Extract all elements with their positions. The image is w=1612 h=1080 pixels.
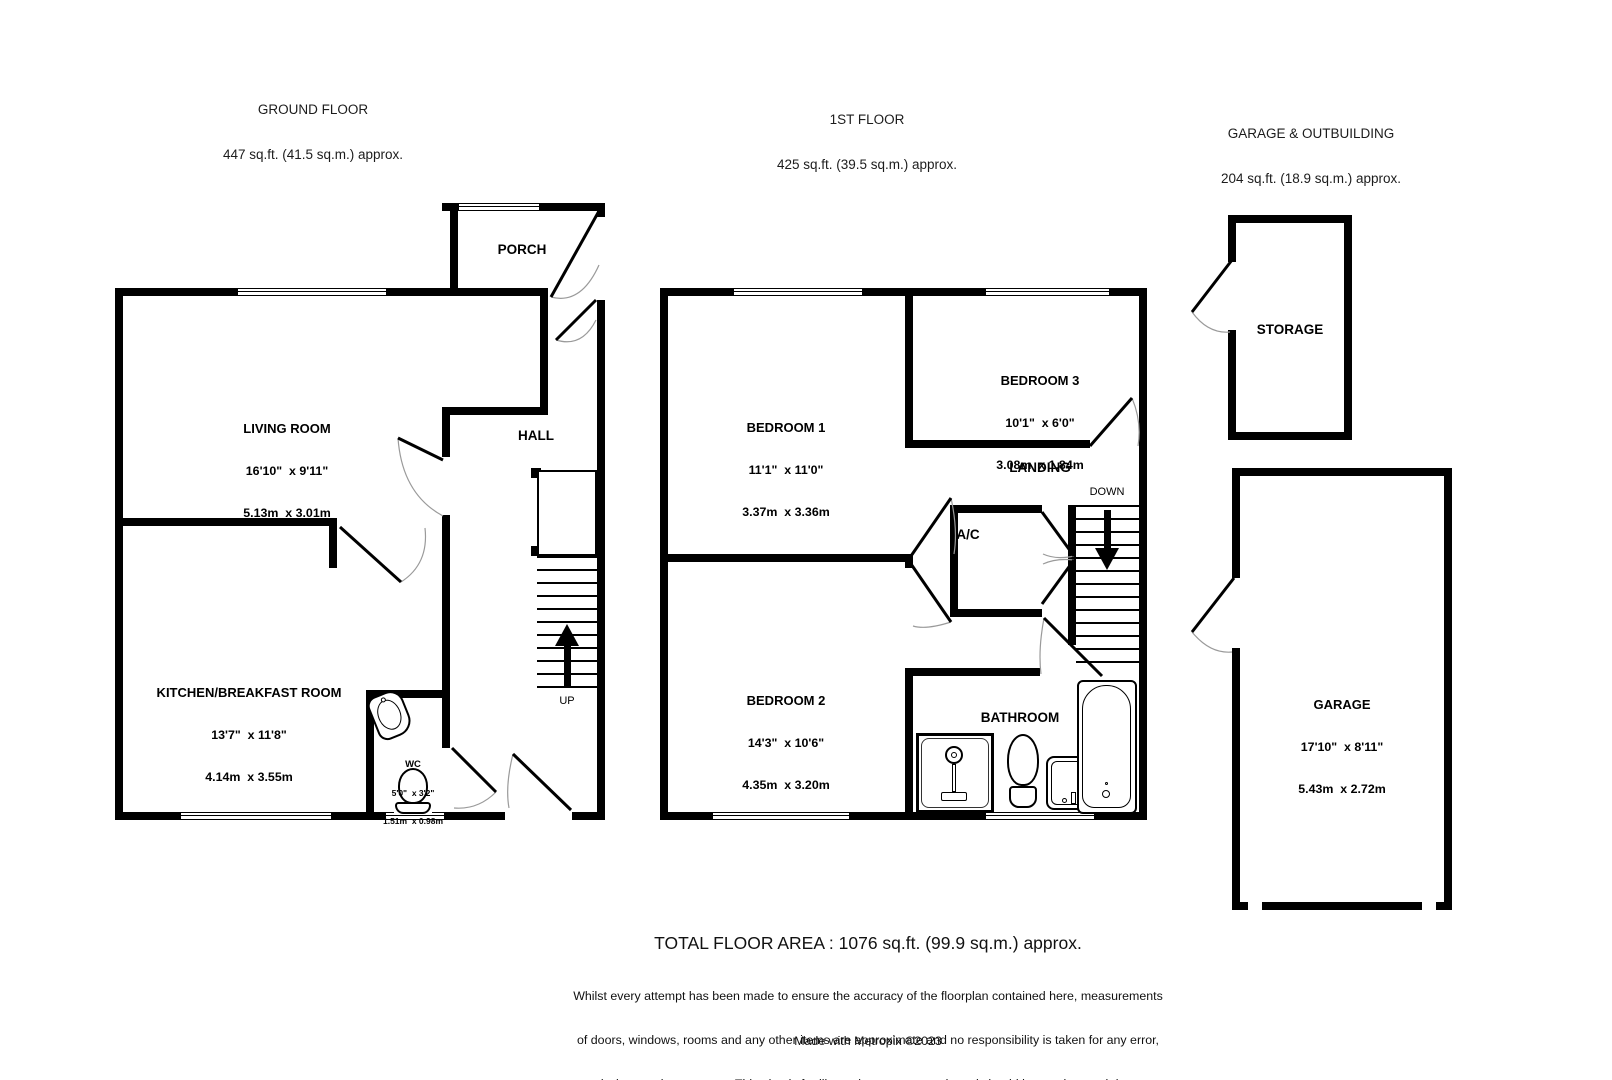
wall <box>905 668 913 812</box>
bathtub-icon <box>1077 680 1137 814</box>
window <box>458 203 540 211</box>
wall <box>1444 468 1452 910</box>
disclaimer-text: Whilst every attempt has been made to en… <box>570 960 1166 1080</box>
room-dims-imperial: 13'7" x 11'8" <box>157 728 342 742</box>
ground-floor-area: 447 sq.ft. (41.5 sq.m.) approx. <box>223 147 403 162</box>
garage-label: GARAGE 17'10" x 8'11" 5.43m x 2.72m <box>1298 670 1386 824</box>
window <box>237 288 387 296</box>
wall <box>597 300 605 820</box>
room-dims-metric: 4.35m x 3.20m <box>742 778 830 792</box>
porch-label: PORCH <box>498 242 547 257</box>
wall <box>540 296 548 415</box>
outbuilding-header: GARAGE & OUTBUILDING 204 sq.ft. (18.9 sq… <box>1221 96 1401 216</box>
first-floor-header: 1ST FLOOR 425 sq.ft. (39.5 sq.m.) approx… <box>777 82 957 202</box>
floorplan-canvas: GROUND FLOOR 447 sq.ft. (41.5 sq.m.) app… <box>0 0 1612 1080</box>
down-label: DOWN <box>1090 486 1125 498</box>
up-label: UP <box>559 695 574 707</box>
garage-door-marker <box>1422 902 1436 910</box>
front-door-arc <box>545 205 603 301</box>
room-dims-metric: 3.37m x 3.36m <box>742 505 830 519</box>
ac-door-upper-arc <box>1040 508 1078 560</box>
wall <box>1232 648 1240 910</box>
room-name: KITCHEN/BREAKFAST ROOM <box>157 686 342 700</box>
ac-label: A/C <box>956 527 979 542</box>
window <box>733 288 863 296</box>
wall <box>950 505 1042 513</box>
wc-door-arc <box>448 742 504 814</box>
room-name: BEDROOM 2 <box>742 694 830 708</box>
room-dims-metric: 4.14m x 3.55m <box>157 770 342 784</box>
bedroom2-label: BEDROOM 2 14'3" x 10'6" 4.35m x 3.20m <box>742 666 830 820</box>
living-room-label: LIVING ROOM 16'10" x 9'11" 5.13m x 3.01m <box>243 394 331 548</box>
back-door-arc <box>503 746 575 814</box>
storage-label: STORAGE <box>1257 322 1324 337</box>
bedroom3-door-arc <box>1084 392 1140 450</box>
wc-label: WC 5'0" x 3'2" 1.51m x 0.98m <box>383 741 443 846</box>
wall <box>1228 432 1352 440</box>
bedroom1-door-arc <box>906 490 958 560</box>
room-dims-metric: 5.13m x 3.01m <box>243 506 331 520</box>
outbuilding-title: GARAGE & OUTBUILDING <box>1221 126 1401 141</box>
kitchen-label: KITCHEN/BREAKFAST ROOM 13'7" x 11'8" 4.1… <box>157 658 342 812</box>
toilet-icon <box>1004 734 1042 812</box>
window <box>985 288 1110 296</box>
bedroom3-label: BEDROOM 3 10'1" x 6'0" 3.08m x 1.84m <box>996 346 1084 500</box>
room-name: BEDROOM 3 <box>996 374 1084 388</box>
ac-door-lower-arc <box>1040 556 1078 608</box>
first-floor-area: 425 sq.ft. (39.5 sq.m.) approx. <box>777 157 957 172</box>
wall <box>1139 288 1147 820</box>
wall <box>1228 215 1352 223</box>
bedroom1-label: BEDROOM 1 11'1" x 11'0" 3.37m x 3.36m <box>742 393 830 547</box>
garage-door-marker <box>1248 902 1262 910</box>
wall <box>1228 330 1236 440</box>
room-dims-metric: 5.43m x 2.72m <box>1298 782 1386 796</box>
wall <box>442 698 450 748</box>
garage-door-arc <box>1186 572 1238 654</box>
hall-label: HALL <box>518 428 554 443</box>
shower-icon <box>916 733 994 813</box>
window <box>180 812 332 820</box>
outbuilding-area: 204 sq.ft. (18.9 sq.m.) approx. <box>1221 171 1401 186</box>
room-dims-imperial: 16'10" x 9'11" <box>243 464 331 478</box>
kitchen-door-arc <box>337 524 449 588</box>
landing-label: LANDING <box>1009 460 1071 475</box>
porch-hall-door-arc <box>548 296 600 346</box>
wall <box>1344 215 1352 440</box>
wall <box>905 288 913 448</box>
ground-floor-title: GROUND FLOOR <box>223 102 403 117</box>
room-dims-imperial: 5'0" x 3'2" <box>383 789 443 799</box>
room-dims-imperial: 17'10" x 8'11" <box>1298 740 1386 754</box>
room-dims-imperial: 14'3" x 10'6" <box>742 736 830 750</box>
bedroom2-door-arc <box>906 560 958 630</box>
room-name: WC <box>383 760 443 770</box>
wall <box>450 407 548 415</box>
stairs-void <box>537 470 597 556</box>
wall <box>572 812 605 820</box>
bathroom-label: BATHROOM <box>981 710 1060 725</box>
wall <box>905 668 1040 676</box>
wall <box>1232 902 1452 910</box>
disclaimer-line: Whilst every attempt has been made to en… <box>570 989 1166 1004</box>
wall <box>660 554 913 562</box>
room-dims-imperial: 11'1" x 11'0" <box>742 463 830 477</box>
room-dims-imperial: 10'1" x 6'0" <box>996 416 1084 430</box>
storage-door-arc <box>1186 254 1236 336</box>
wall <box>115 288 123 820</box>
living-room-door-arc <box>392 432 448 520</box>
total-floor-area: TOTAL FLOOR AREA : 1076 sq.ft. (99.9 sq.… <box>654 933 1082 954</box>
metropix-credit: Made with Metropix ©2023 <box>794 1034 942 1048</box>
room-name: BEDROOM 1 <box>742 421 830 435</box>
wall <box>1232 468 1452 476</box>
room-name: LIVING ROOM <box>243 422 331 436</box>
room-name: GARAGE <box>1298 698 1386 712</box>
window <box>985 812 1095 820</box>
wall <box>950 609 1042 617</box>
room-dims-metric: 1.51m x 0.98m <box>383 817 443 827</box>
wall <box>450 203 458 296</box>
first-floor-title: 1ST FLOOR <box>777 112 957 127</box>
wall <box>1232 468 1240 578</box>
ground-floor-header: GROUND FLOOR 447 sq.ft. (41.5 sq.m.) app… <box>223 72 403 192</box>
